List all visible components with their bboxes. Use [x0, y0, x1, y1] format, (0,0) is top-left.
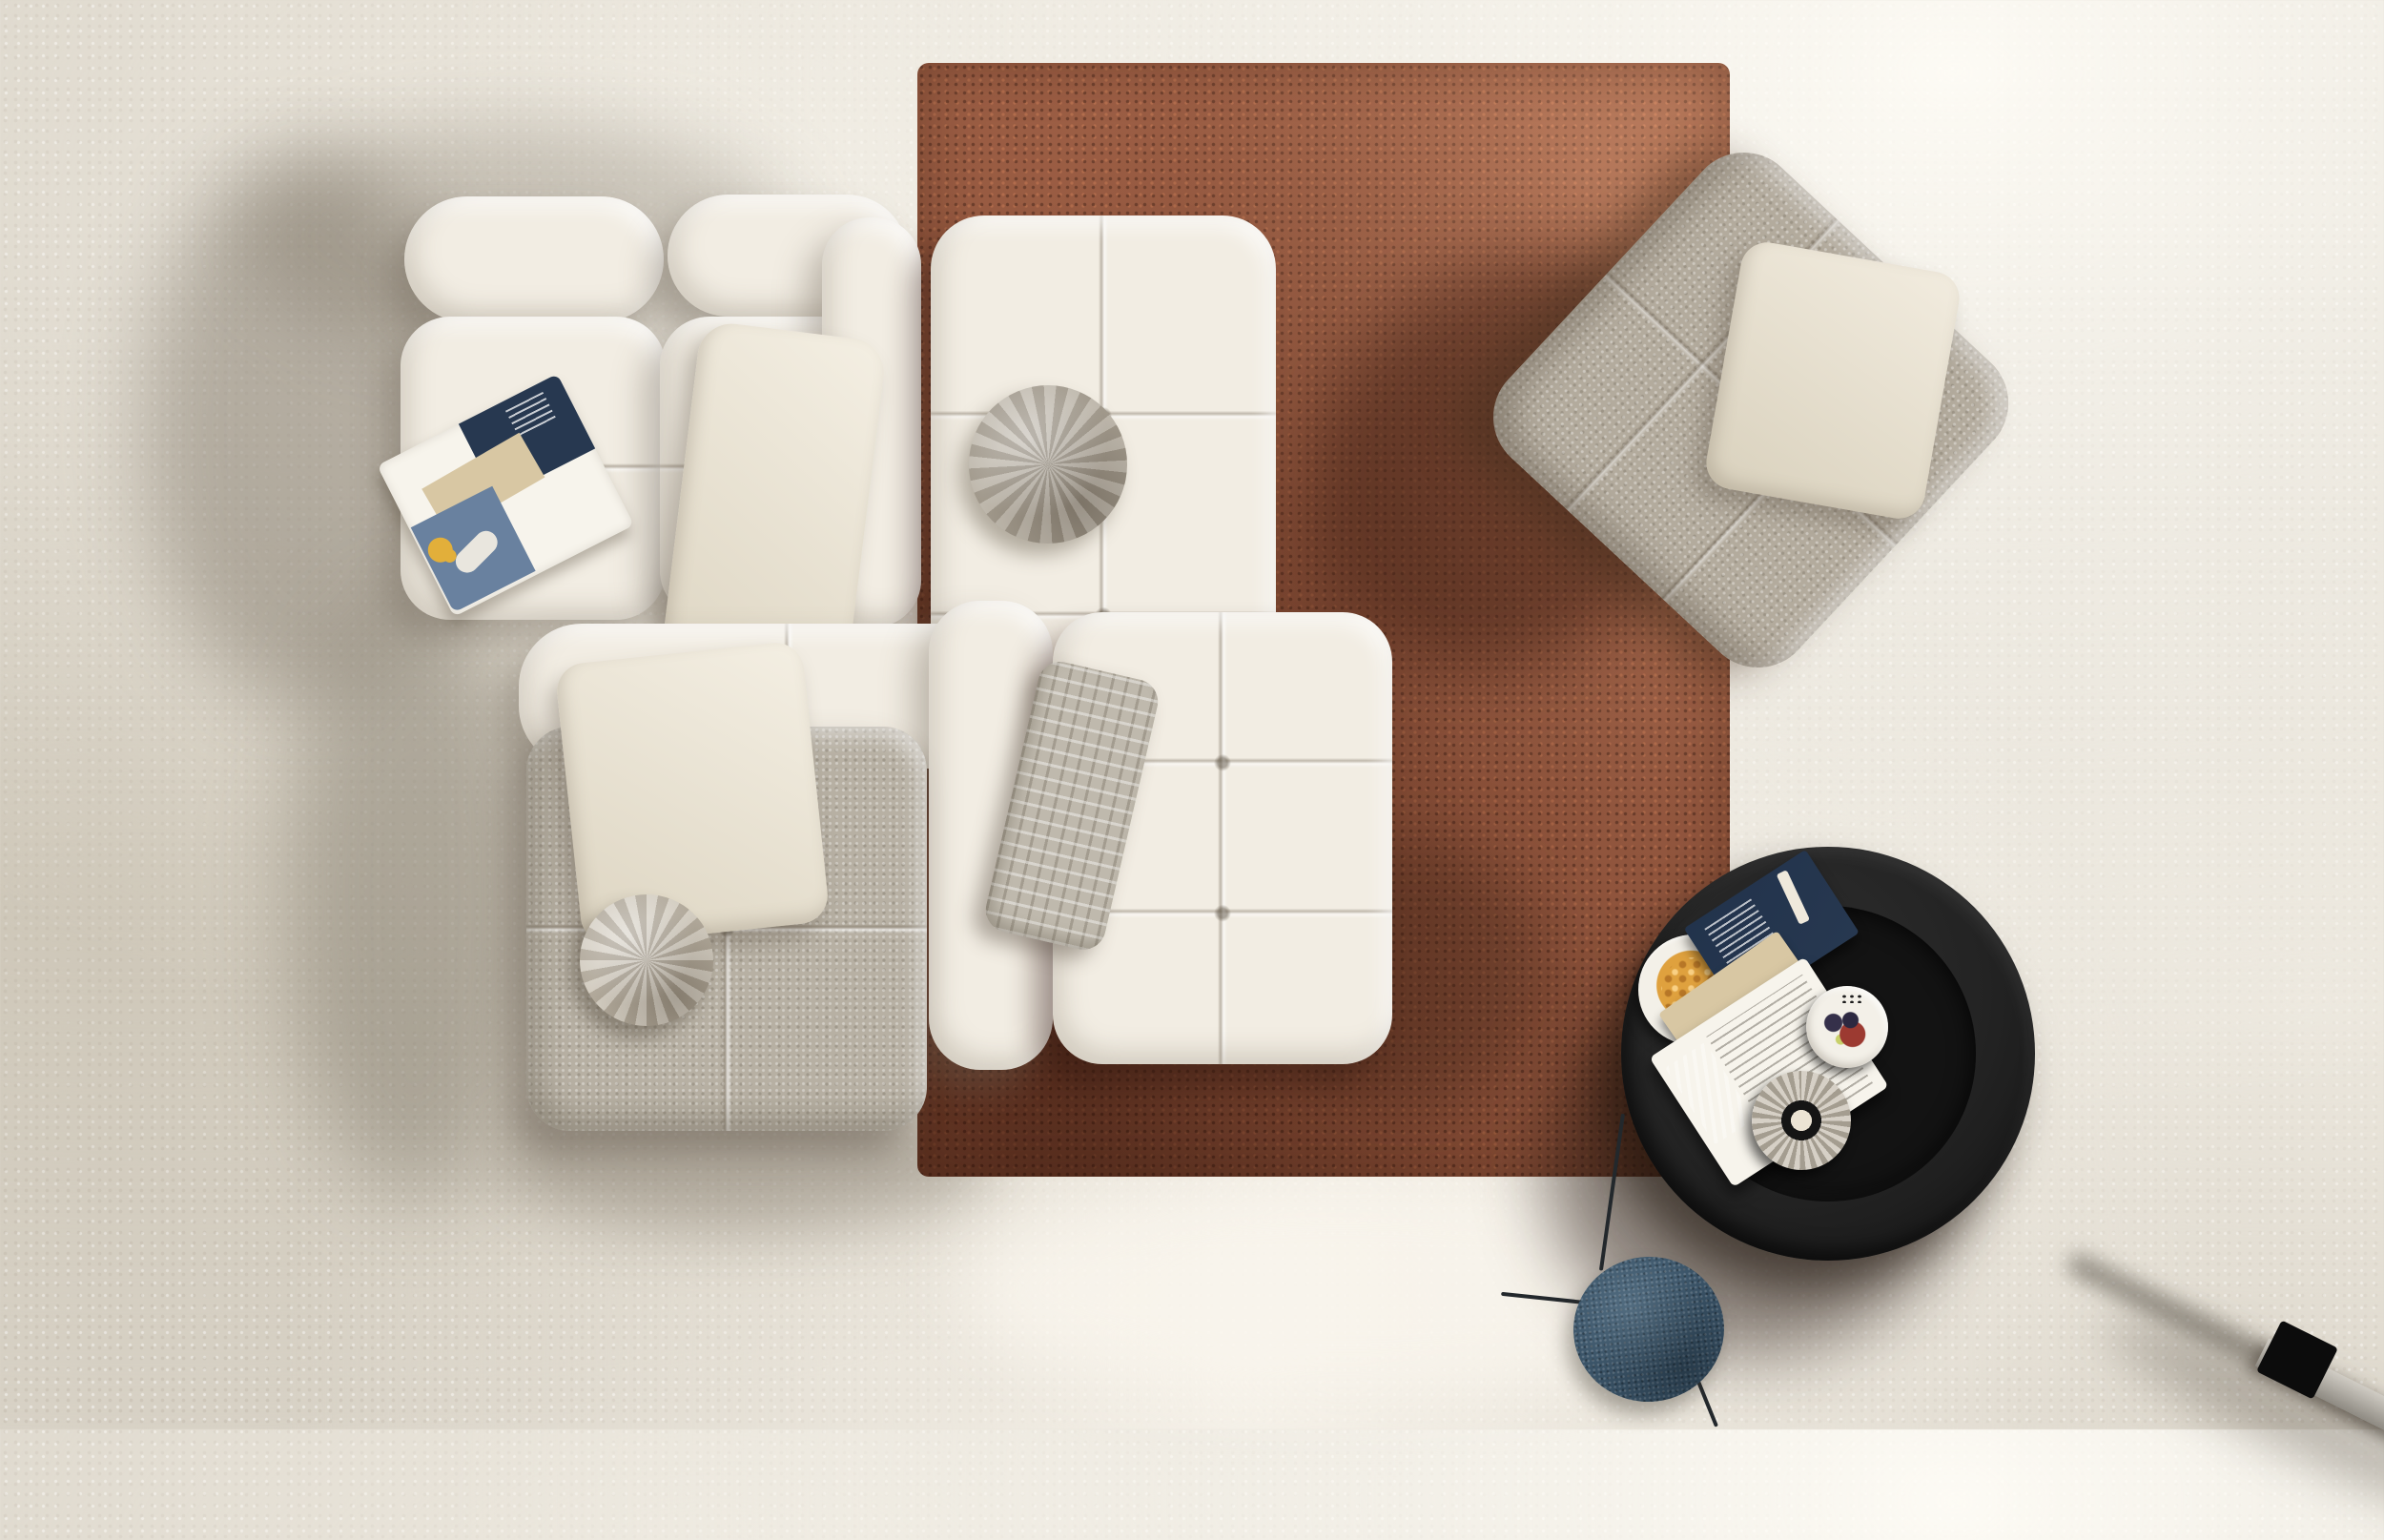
dessert-plate	[1806, 986, 1888, 1068]
soft-shadow	[286, 591, 544, 1201]
round-velvet-pillow	[969, 385, 1127, 544]
coffee-table	[1621, 847, 2035, 1261]
armchair-pillow	[1702, 238, 1963, 523]
seed-specks	[1840, 994, 1865, 1003]
white-throw-pillow	[554, 640, 831, 947]
sofa-back-bolster-left	[404, 196, 664, 322]
side-table-leg-southeast	[1696, 1378, 1718, 1427]
soft-shadow	[2065, 1250, 2384, 1475]
coaster-candle	[1752, 1071, 1851, 1170]
soft-shadow	[2092, 1293, 2384, 1540]
round-pouf	[580, 894, 713, 1026]
berries-tart	[1819, 1007, 1873, 1051]
blue-side-table	[1566, 1249, 1731, 1409]
